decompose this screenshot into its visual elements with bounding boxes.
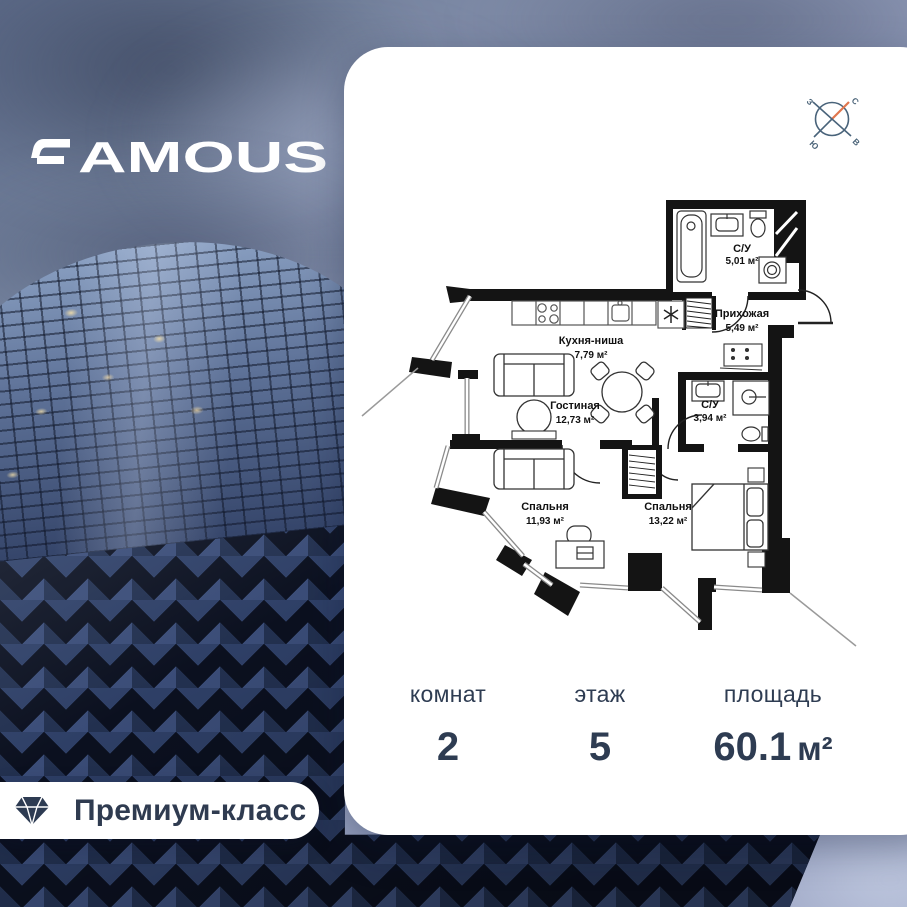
listing-stats: комнат 2 этаж 5 площадь 60.1м² <box>384 681 858 770</box>
listing-background: AMOUS комнат 2 этаж 5 площадь 60.1м² Пре… <box>0 0 907 907</box>
premium-class-badge: Премиум-класс <box>0 782 319 839</box>
premium-class-label: Премиум-класс <box>74 794 306 828</box>
stat-rooms-label: комнат <box>384 681 512 708</box>
stat-rooms-value: 2 <box>384 725 512 770</box>
stat-area-value: 60.1м² <box>688 725 858 770</box>
brand-wordmark-text: AMOUS <box>78 138 328 178</box>
stat-floor: этаж 5 <box>540 681 660 770</box>
stat-floor-value: 5 <box>540 725 660 770</box>
brand-logo: AMOUS <box>30 138 330 178</box>
stylized-f-glyph <box>31 139 70 164</box>
diamond-icon <box>14 795 50 826</box>
stat-rooms: комнат 2 <box>384 681 512 770</box>
stat-area: площадь 60.1м² <box>688 681 858 770</box>
stat-area-label: площадь <box>688 681 858 708</box>
stat-area-unit: м² <box>797 730 832 767</box>
stat-floor-label: этаж <box>540 681 660 708</box>
